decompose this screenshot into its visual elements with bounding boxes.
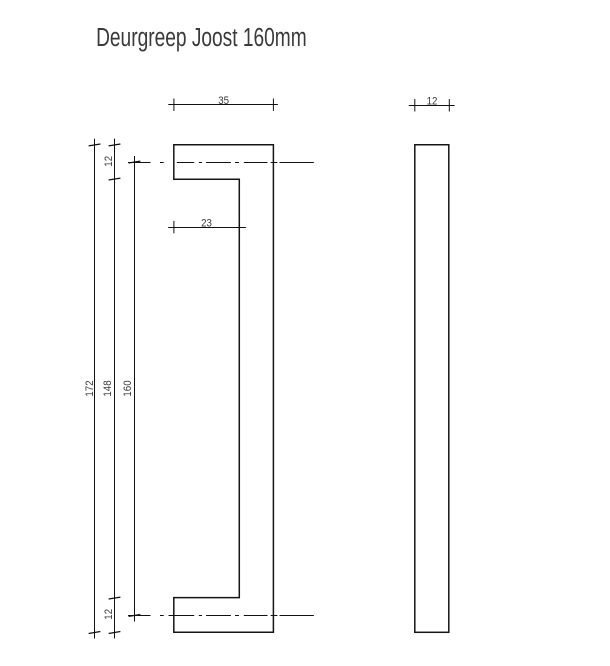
svg-text:172: 172 [85,380,97,396]
svg-text:12: 12 [103,609,115,620]
svg-text:Deurgreep Joost 160mm: Deurgreep Joost 160mm [96,23,307,51]
svg-text:12: 12 [427,96,438,108]
svg-text:12: 12 [104,156,116,167]
svg-text:23: 23 [201,218,212,230]
svg-text:148: 148 [102,380,114,396]
svg-text:160: 160 [123,380,135,396]
svg-text:35: 35 [218,96,229,108]
